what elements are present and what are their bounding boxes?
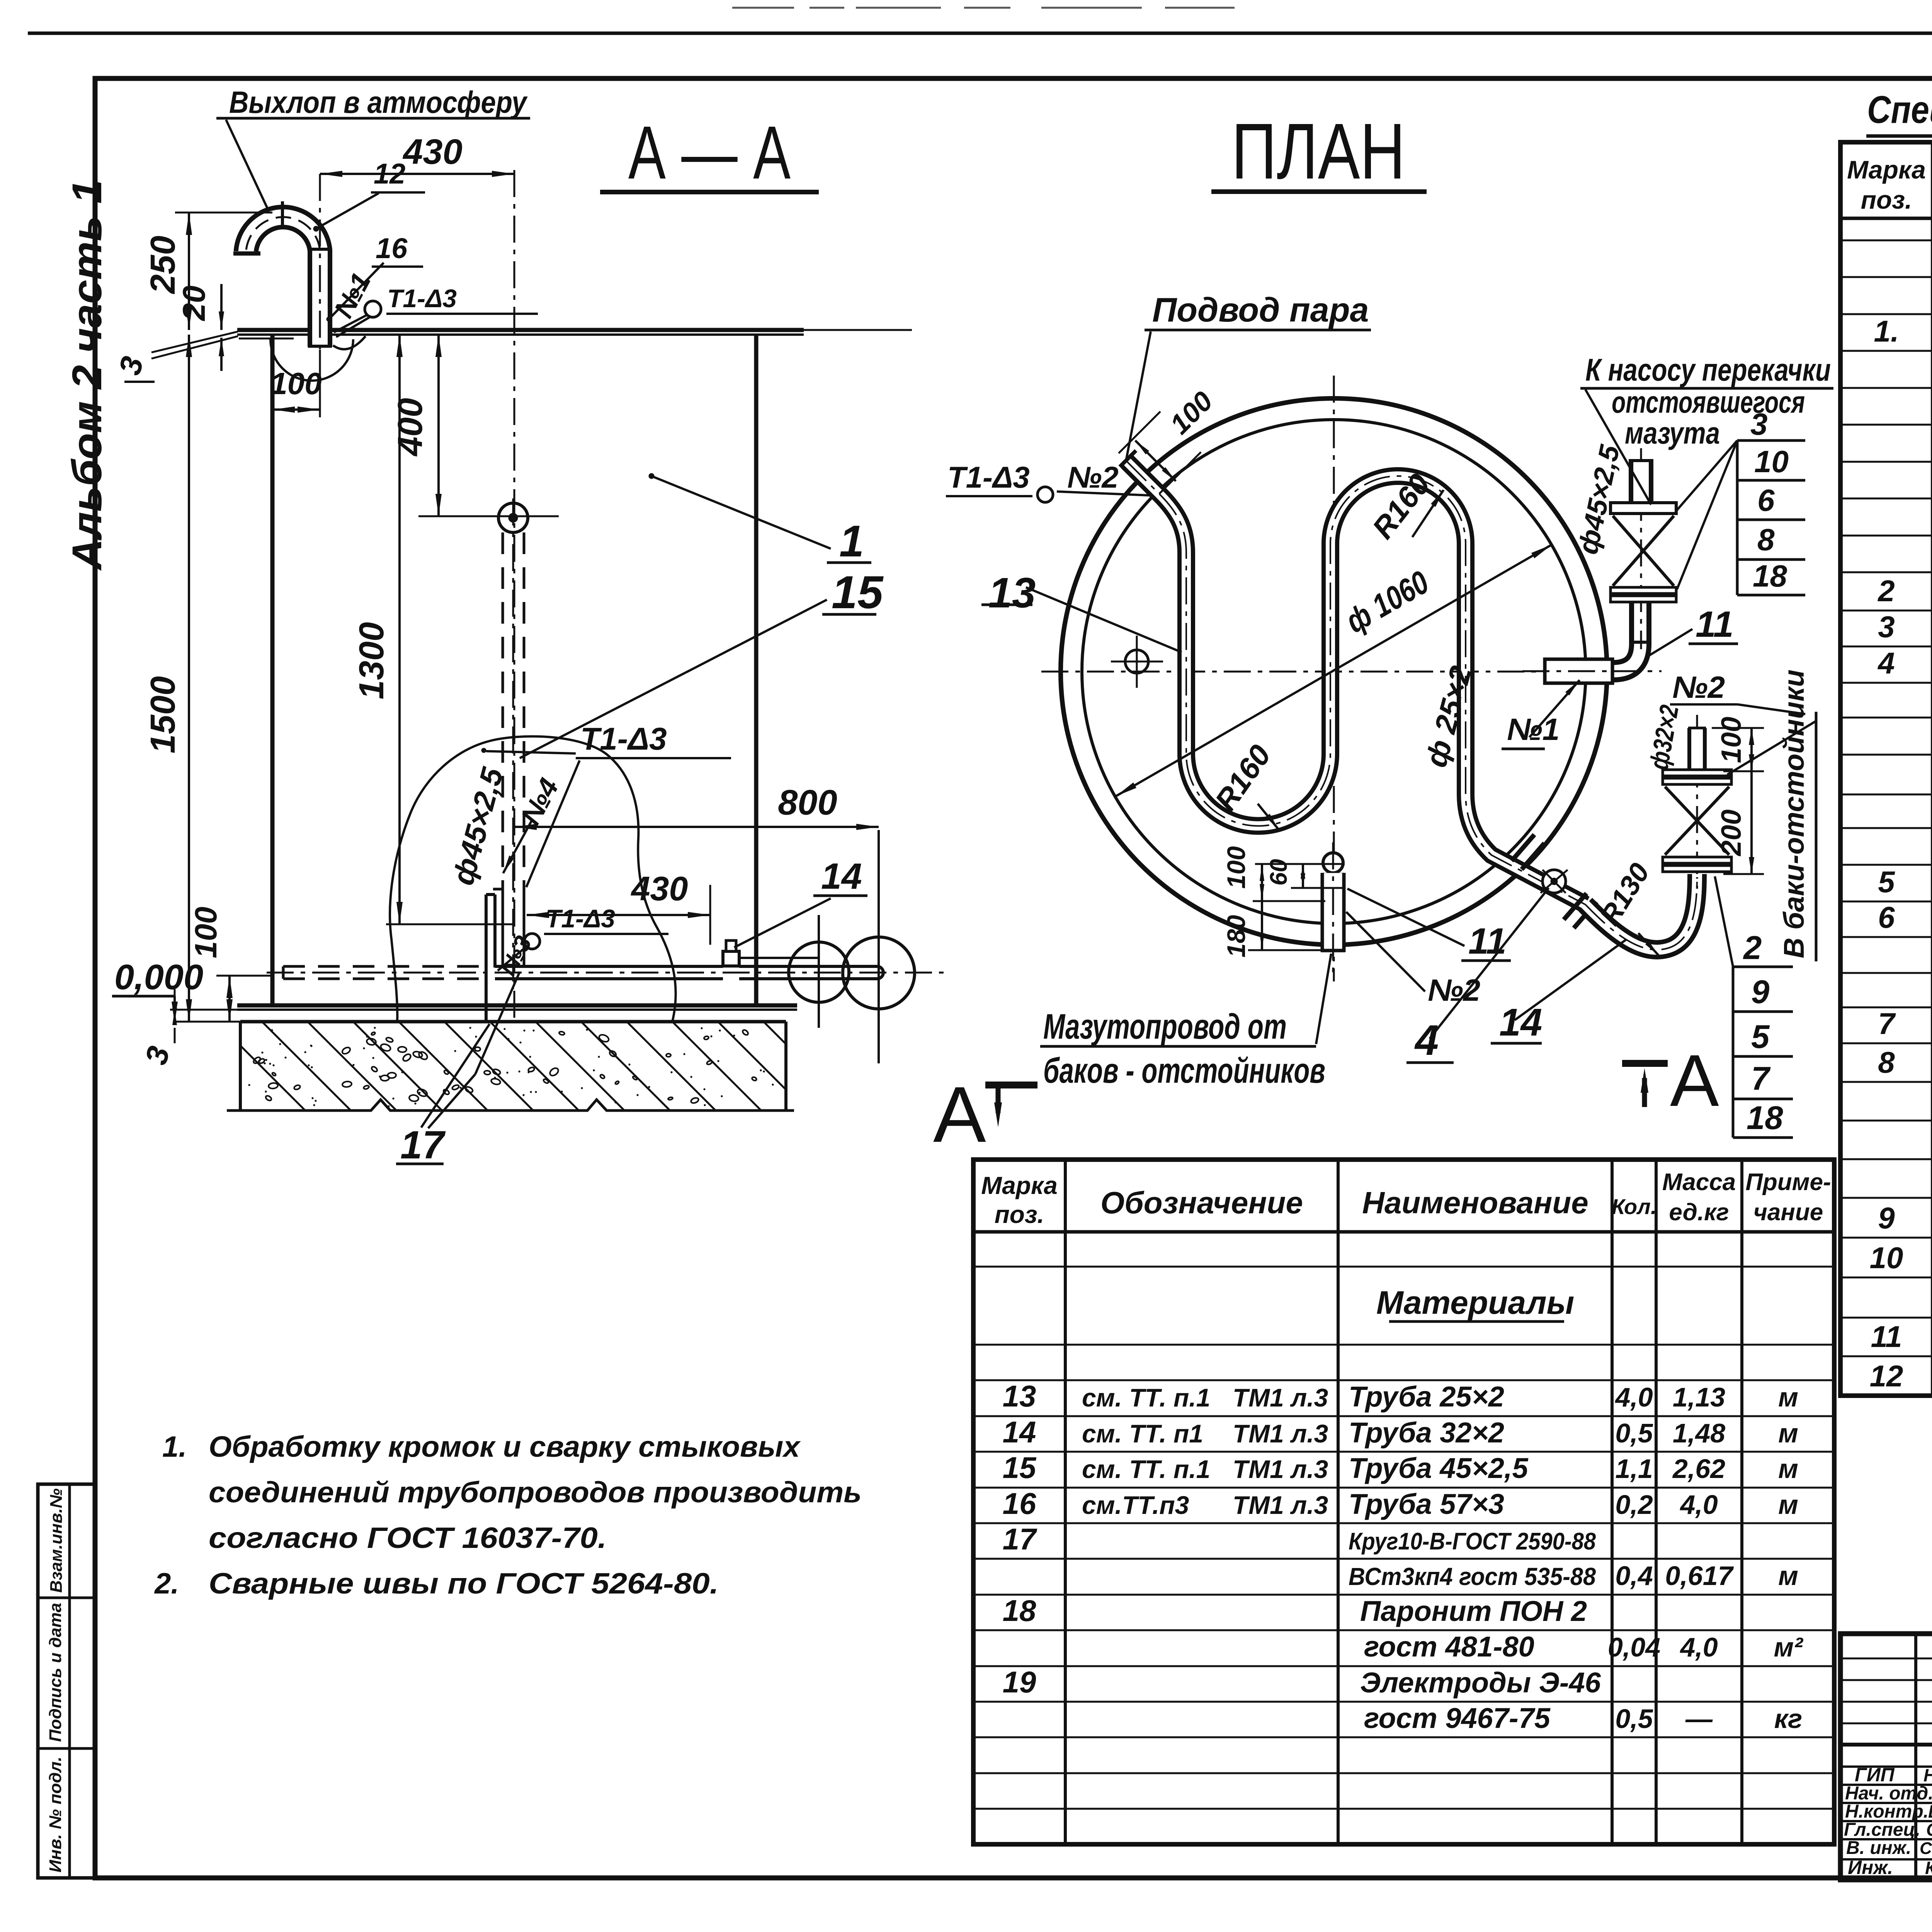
svg-text:Т1-Δ3: Т1-Δ3 [387, 284, 457, 313]
svg-text:Сварные швы по ГОСТ 5264-80.: Сварные швы по ГОСТ 5264-80. [209, 1567, 719, 1600]
svg-text:Нач. отд.: Нач. отд. [1845, 1783, 1932, 1804]
svg-text:Масса: Масса [1662, 1169, 1736, 1196]
svg-text:мазута: мазута [1625, 416, 1720, 450]
svg-text:1,1: 1,1 [1615, 1454, 1653, 1484]
svg-text:1300: 1300 [352, 622, 391, 699]
svg-text:гост 481-80: гост 481-80 [1364, 1631, 1534, 1663]
svg-text:ед.кг: ед.кг [1669, 1199, 1729, 1226]
svg-text:18: 18 [1747, 1100, 1783, 1136]
svg-text:13: 13 [988, 569, 1036, 617]
svg-text:Марка: Марка [1847, 155, 1926, 184]
svg-text:11: 11 [1468, 921, 1507, 962]
svg-text:А: А [933, 1070, 986, 1159]
svg-text:18: 18 [1003, 1594, 1036, 1628]
svg-text:В. инж.: В. инж. [1846, 1838, 1911, 1858]
svg-text:Круг10-В-ГОСТ 2590-88: Круг10-В-ГОСТ 2590-88 [1349, 1528, 1596, 1555]
svg-text:2: 2 [1877, 574, 1895, 608]
svg-text:м: м [1778, 1490, 1798, 1520]
svg-text:м: м [1778, 1561, 1798, 1591]
svg-text:Кол.: Кол. [1612, 1194, 1657, 1219]
svg-text:ТМ1 л.3: ТМ1 л.3 [1233, 1455, 1328, 1483]
svg-text:см. ТТ. п1: см. ТТ. п1 [1082, 1419, 1203, 1448]
svg-text:Приме-: Приме- [1745, 1169, 1831, 1196]
svg-text:60: 60 [1265, 859, 1292, 886]
svg-text:9: 9 [1878, 1201, 1895, 1235]
svg-text:Ниддальский: Ниддальский [1923, 1765, 1932, 1785]
svg-text:Спецификация на бак отстоявшег: Спецификация на бак отстоявшегося мазута [1867, 88, 1932, 131]
svg-text:Костромин: Костромин [1925, 1858, 1932, 1878]
svg-text:см. ТТ. п.1: см. ТТ. п.1 [1082, 1383, 1210, 1412]
svg-text:Обозначение: Обозначение [1100, 1185, 1303, 1220]
svg-text:№1: №1 [1507, 712, 1560, 747]
svg-text:18: 18 [1753, 559, 1787, 593]
svg-text:7: 7 [1751, 1060, 1771, 1097]
svg-text:отстоявшегося: отстоявшегося [1612, 385, 1805, 419]
svg-text:1.: 1. [1874, 314, 1899, 348]
svg-text:Альбом 2 часть 1: Альбом 2 часть 1 [63, 180, 110, 571]
svg-text:6: 6 [1757, 483, 1775, 517]
svg-text:В баки-отстойники: В баки-отстойники [1778, 670, 1810, 958]
svg-text:1,48: 1,48 [1673, 1418, 1725, 1448]
svg-text:А: А [1670, 1040, 1719, 1122]
svg-text:Взам.инв.№: Взам.инв.№ [47, 1488, 66, 1593]
svg-text:2,62: 2,62 [1672, 1454, 1725, 1484]
svg-text:16: 16 [376, 232, 408, 264]
svg-text:ВСт3кп4 гост 535-88: ВСт3кп4 гост 535-88 [1349, 1563, 1596, 1590]
svg-text:согласно ГОСТ 16037-70.: согласно ГОСТ 16037-70. [209, 1522, 607, 1554]
svg-text:0,617: 0,617 [1665, 1561, 1734, 1591]
svg-text:поз.: поз. [1861, 185, 1912, 214]
svg-text:100: 100 [1716, 717, 1747, 763]
svg-text:3: 3 [1878, 610, 1895, 644]
svg-text:100: 100 [270, 366, 321, 401]
svg-text:Сурмонин: Сурмонин [1926, 1820, 1932, 1840]
svg-text:Н.контр.: Н.контр. [1845, 1801, 1929, 1822]
svg-text:4,0: 4,0 [1679, 1632, 1718, 1662]
svg-text:1.: 1. [162, 1430, 187, 1463]
svg-text:ТМ1 л.3: ТМ1 л.3 [1233, 1383, 1328, 1412]
svg-text:19: 19 [1003, 1665, 1036, 1699]
svg-text:15: 15 [832, 566, 884, 618]
svg-text:7: 7 [1878, 1007, 1896, 1041]
svg-text:Паронит ПОН 2: Паронит ПОН 2 [1360, 1595, 1587, 1627]
svg-text:поз.: поз. [995, 1201, 1044, 1228]
svg-text:см.ТТ.п3: см.ТТ.п3 [1082, 1491, 1189, 1519]
svg-text:Т1-Δ3: Т1-Δ3 [947, 460, 1030, 494]
svg-text:№2: №2 [1067, 460, 1119, 494]
svg-text:12: 12 [1870, 1359, 1903, 1393]
svg-text:Электроды Э-46: Электроды Э-46 [1360, 1667, 1601, 1699]
svg-text:1: 1 [839, 517, 864, 566]
svg-text:гост 9467-75: гост 9467-75 [1364, 1702, 1551, 1734]
svg-text:—: — [1685, 1704, 1713, 1734]
svg-text:кг: кг [1774, 1704, 1803, 1734]
svg-text:см. ТТ. п.1: см. ТТ. п.1 [1082, 1455, 1210, 1483]
svg-text:14: 14 [1003, 1415, 1036, 1449]
svg-text:ТМ1 л.3: ТМ1 л.3 [1233, 1419, 1328, 1448]
svg-text:Спранцманис: Спранцманис [1920, 1839, 1932, 1858]
svg-text:4,0: 4,0 [1679, 1490, 1718, 1520]
svg-text:4: 4 [1414, 1017, 1439, 1064]
svg-text:м: м [1778, 1418, 1798, 1448]
svg-text:К насосу перекачки: К насосу перекачки [1585, 352, 1831, 388]
svg-text:Марка: Марка [981, 1172, 1058, 1199]
svg-text:10: 10 [1754, 444, 1789, 479]
svg-text:14: 14 [821, 856, 862, 897]
svg-text:10: 10 [1870, 1241, 1903, 1275]
svg-text:430: 430 [402, 132, 463, 172]
svg-text:1500: 1500 [144, 676, 182, 753]
svg-text:4,0: 4,0 [1614, 1382, 1653, 1412]
svg-text:20: 20 [177, 286, 212, 321]
svg-text:11: 11 [1696, 604, 1734, 645]
svg-text:180: 180 [1222, 915, 1250, 957]
svg-text:0,2: 0,2 [1615, 1490, 1653, 1520]
svg-text:А — А: А — А [628, 111, 791, 195]
svg-text:11: 11 [1871, 1320, 1902, 1354]
svg-text:13: 13 [1003, 1379, 1036, 1413]
svg-text:баков - отстойников: баков - отстойников [1043, 1051, 1325, 1090]
svg-text:Т1-Δ3: Т1-Δ3 [580, 721, 667, 757]
svg-text:Материалы: Материалы [1376, 1284, 1574, 1321]
svg-text:Подпись и дата: Подпись и дата [46, 1603, 65, 1742]
svg-text:Шнитко: Шнитко [1928, 1801, 1932, 1821]
svg-text:0,4: 0,4 [1615, 1561, 1653, 1591]
svg-text:Труба 45×2,5: Труба 45×2,5 [1349, 1452, 1529, 1484]
svg-text:100: 100 [189, 907, 223, 958]
svg-text:100: 100 [1222, 846, 1250, 889]
svg-text:2: 2 [1743, 930, 1762, 966]
svg-text:Гл.спец.: Гл.спец. [1844, 1820, 1920, 1840]
svg-text:ТМ1 л.3: ТМ1 л.3 [1233, 1491, 1328, 1519]
svg-text:8: 8 [1878, 1045, 1895, 1079]
svg-text:Инв. № подл.: Инв. № подл. [46, 1757, 65, 1872]
svg-text:17: 17 [400, 1123, 446, 1167]
svg-text:Труба 32×2: Труба 32×2 [1349, 1417, 1504, 1449]
svg-text:1,13: 1,13 [1673, 1382, 1725, 1412]
svg-text:17: 17 [1003, 1522, 1037, 1556]
svg-text:№2: №2 [1428, 973, 1480, 1007]
svg-text:2.: 2. [154, 1567, 179, 1600]
svg-text:Труба 57×3: Труба 57×3 [1349, 1488, 1504, 1520]
svg-text:Т1-Δ3: Т1-Δ3 [546, 904, 615, 933]
svg-text:Подвод пара: Подвод пара [1152, 291, 1369, 329]
svg-text:4: 4 [1877, 646, 1895, 680]
svg-text:14: 14 [1499, 1001, 1542, 1044]
svg-text:ПЛАН: ПЛАН [1231, 107, 1405, 196]
svg-text:м: м [1778, 1382, 1798, 1412]
svg-text:чание: чание [1753, 1199, 1823, 1226]
svg-text:соединений трубопроводов произ: соединений трубопроводов производить [209, 1476, 862, 1509]
svg-text:Инж.: Инж. [1848, 1857, 1893, 1878]
svg-text:0,000: 0,000 [114, 957, 203, 997]
svg-text:м²: м² [1774, 1632, 1803, 1662]
svg-text:№2: №2 [1672, 670, 1725, 704]
svg-text:0,5: 0,5 [1615, 1418, 1653, 1448]
svg-text:0,5: 0,5 [1615, 1704, 1653, 1734]
svg-text:800: 800 [778, 783, 837, 822]
svg-text:Труба 25×2: Труба 25×2 [1349, 1381, 1504, 1413]
svg-text:Выхлоп в атмосферу: Выхлоп в атмосферу [229, 85, 528, 119]
svg-text:Мазутопровод от: Мазутопровод от [1043, 1007, 1287, 1046]
svg-text:Обработку кромок и сварку стык: Обработку кромок и сварку стыковых [209, 1430, 801, 1463]
svg-text:5: 5 [1751, 1019, 1770, 1055]
svg-text:3: 3 [1750, 407, 1768, 441]
svg-text:6: 6 [1878, 900, 1895, 934]
svg-text:400: 400 [391, 398, 430, 457]
svg-text:430: 430 [631, 869, 688, 908]
svg-text:8: 8 [1757, 522, 1775, 557]
svg-text:9: 9 [1751, 974, 1769, 1010]
svg-text:м: м [1778, 1454, 1798, 1484]
svg-text:ГИП: ГИП [1855, 1764, 1895, 1786]
svg-text:0,04: 0,04 [1608, 1632, 1660, 1662]
svg-text:15: 15 [1003, 1451, 1037, 1485]
svg-text:200: 200 [1716, 810, 1747, 857]
svg-text:16: 16 [1003, 1486, 1036, 1520]
svg-text:5: 5 [1878, 865, 1895, 899]
svg-text:Наименование: Наименование [1362, 1185, 1588, 1220]
